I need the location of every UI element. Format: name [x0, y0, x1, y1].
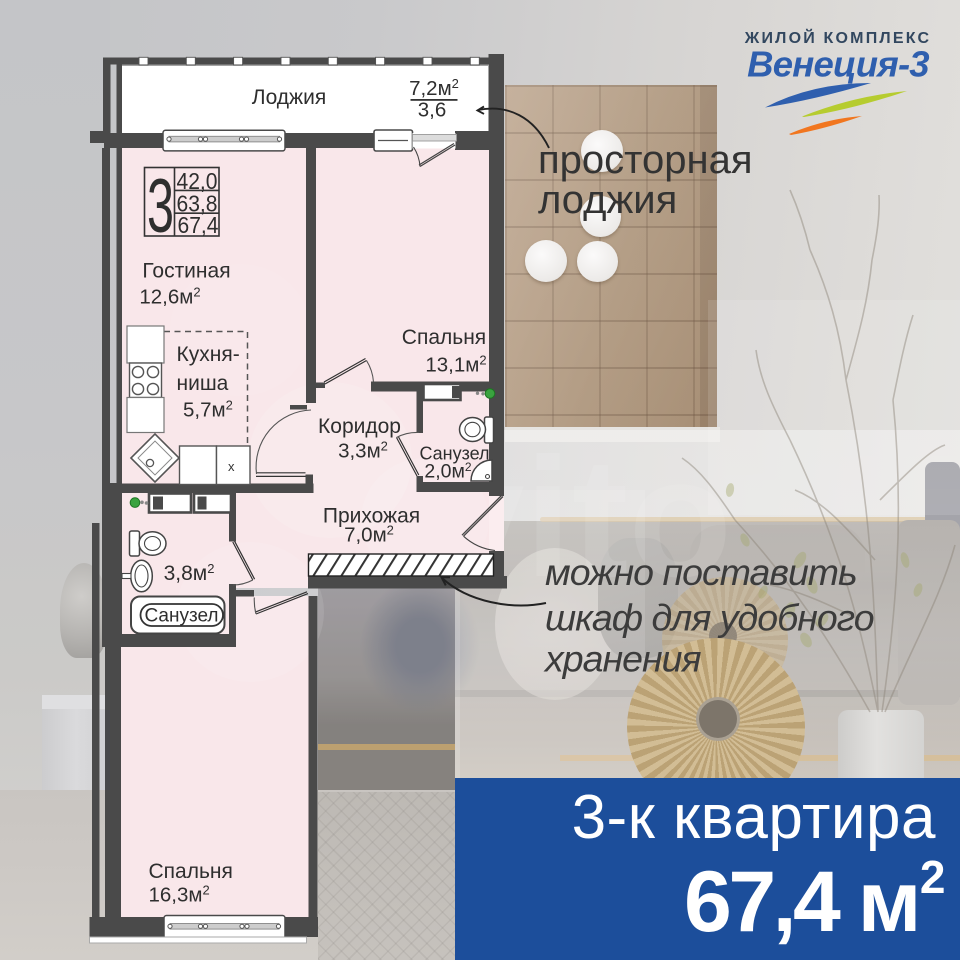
svg-text:7,2м2: 7,2м2 [409, 76, 459, 100]
svg-text:16,3м2: 16,3м2 [149, 883, 210, 907]
svg-text:Лоджия: Лоджия [252, 86, 326, 109]
svg-text:Санузел: Санузел [144, 606, 218, 627]
svg-text:Венеция-3: Венеция-3 [747, 44, 929, 85]
svg-text:Гостиная: Гостиная [142, 260, 230, 283]
svg-text:3,8м2: 3,8м2 [164, 561, 215, 585]
svg-text:3,6: 3,6 [418, 99, 447, 122]
svg-text:3,3м2: 3,3м2 [338, 439, 388, 463]
svg-text:12,6м2: 12,6м2 [139, 285, 200, 309]
svg-text:7,0м2: 7,0м2 [344, 523, 394, 547]
svg-text:x: x [228, 459, 235, 474]
svg-text:шкаф для удобного: шкаф для удобного [545, 597, 874, 639]
svg-text:67,4 м2: 67,4 м2 [684, 851, 944, 950]
svg-text:ниша: ниша [177, 372, 229, 395]
svg-text:67,4: 67,4 [178, 212, 219, 238]
svg-text:13,1м2: 13,1м2 [425, 353, 486, 377]
svg-text:2,0м2: 2,0м2 [424, 460, 472, 483]
svg-text:просторная: просторная [538, 138, 753, 182]
svg-text:Спальня: Спальня [402, 326, 486, 349]
svg-text:лоджия: лоджия [538, 178, 677, 222]
svg-text:5,7м2: 5,7м2 [183, 398, 233, 422]
svg-text:Спальня: Спальня [149, 860, 233, 883]
svg-text:Кухня-: Кухня- [177, 343, 240, 366]
svg-text:3: 3 [147, 164, 174, 249]
svg-text:можно поставить: можно поставить [545, 551, 857, 593]
svg-text:3-к квартира: 3-к квартира [572, 783, 936, 852]
svg-text:Коридор: Коридор [318, 415, 401, 438]
svg-text:хранения: хранения [543, 638, 701, 680]
